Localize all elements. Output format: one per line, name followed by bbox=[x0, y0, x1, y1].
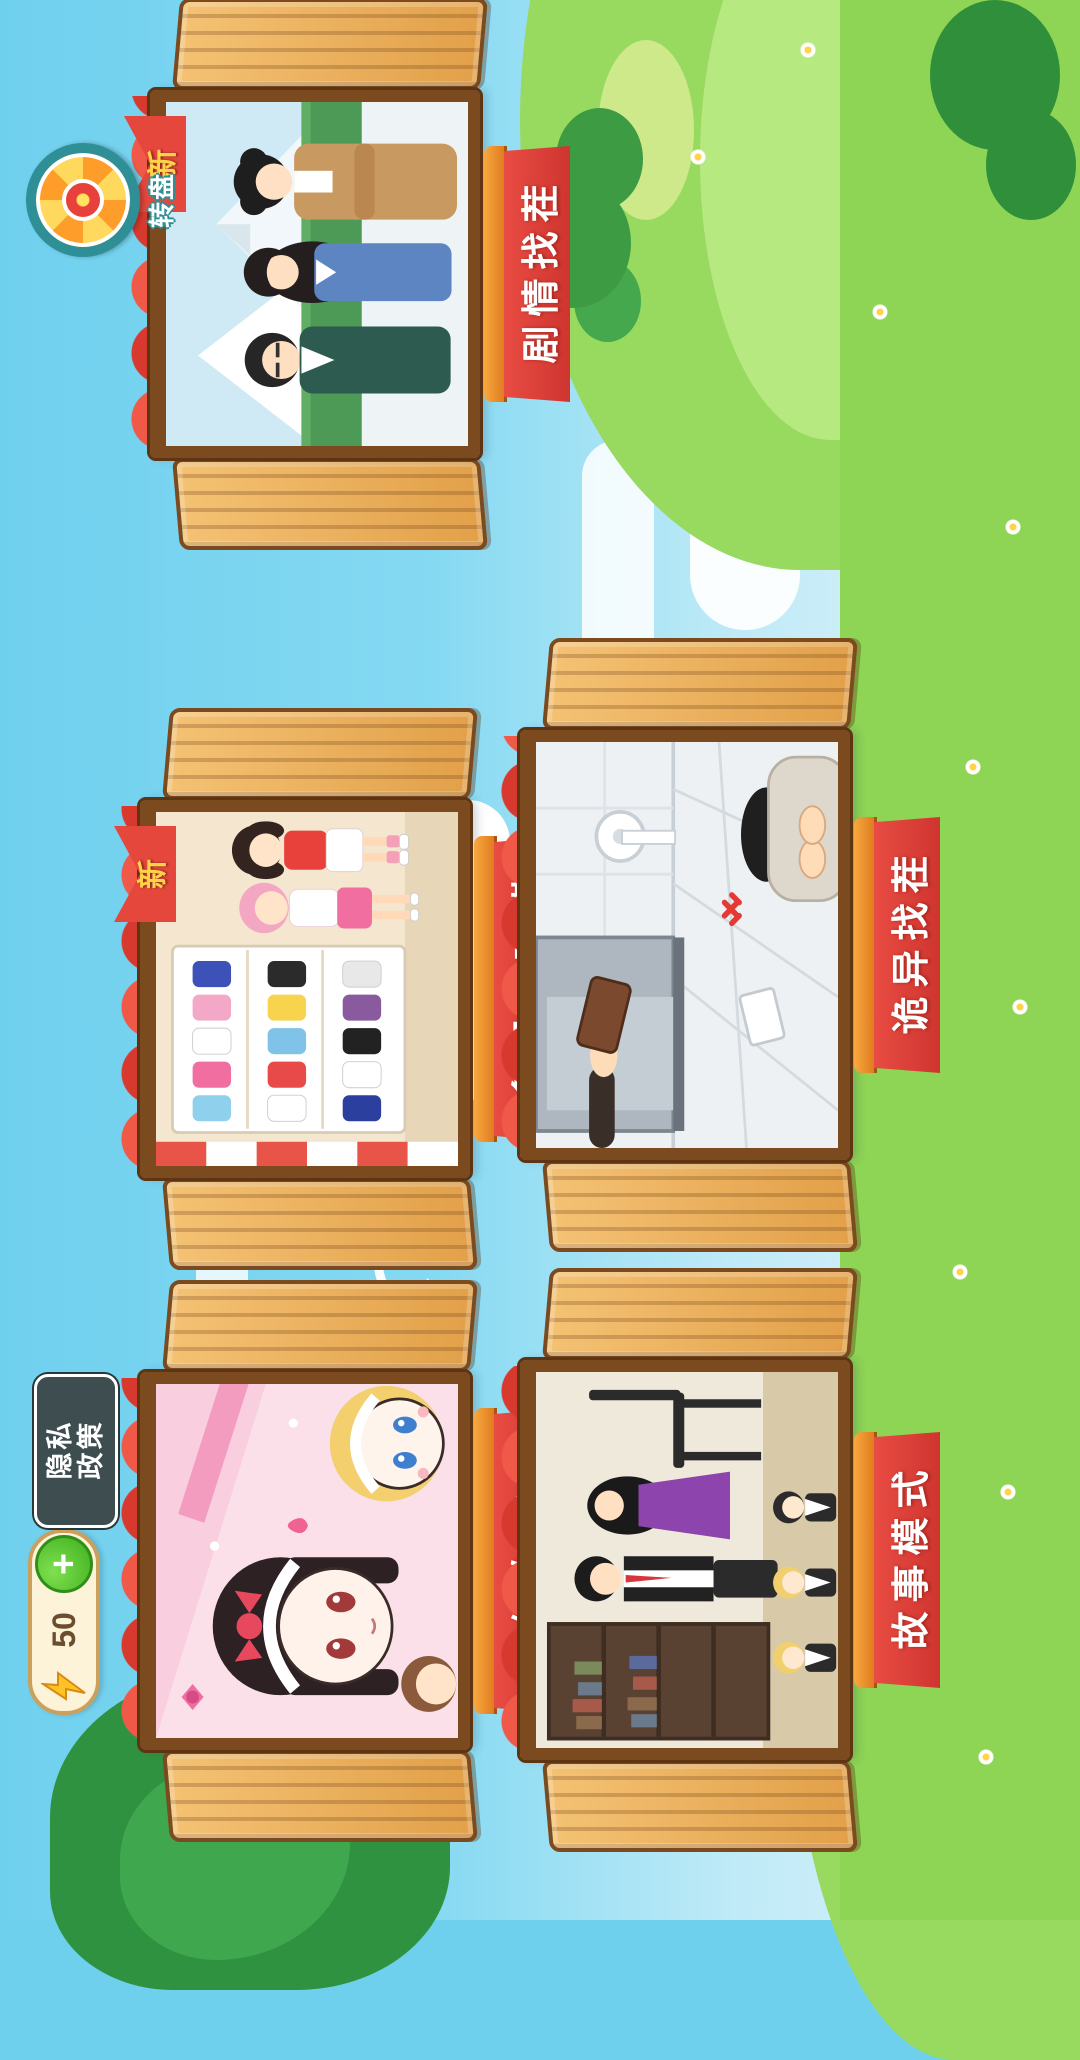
card-title: 故事模式 bbox=[880, 1462, 935, 1659]
card-shutter-left bbox=[162, 1178, 478, 1270]
card-weird-spot-difference[interactable]: 诡异找茬 bbox=[520, 730, 850, 1160]
new-badge: 新 bbox=[114, 826, 176, 922]
card-art-frame bbox=[140, 1372, 470, 1750]
privacy-line1: 隐私 bbox=[45, 1420, 76, 1483]
card-banner: 故事模式 bbox=[854, 1432, 940, 1688]
rotated-landscape-stage: 贴纸女孩儿 bbox=[0, 0, 1080, 1920]
add-energy-button[interactable]: + bbox=[35, 1535, 93, 1593]
card-awning bbox=[490, 736, 524, 1154]
card-shutter-left bbox=[542, 1760, 858, 1852]
game-screen: { "hud": { "energy": {"value": "50", "ad… bbox=[0, 0, 1080, 1920]
flower bbox=[952, 1264, 968, 1280]
flower bbox=[978, 1749, 994, 1765]
card-art-story-mode bbox=[536, 1372, 838, 1748]
flower bbox=[1000, 1484, 1016, 1500]
card-shutter-right bbox=[162, 708, 478, 800]
flower bbox=[965, 759, 981, 775]
card-art-story-spot-difference bbox=[166, 102, 468, 446]
card-shutter-right bbox=[542, 1268, 858, 1360]
flower bbox=[1005, 519, 1021, 535]
prize-wheel-button[interactable]: 转盘 bbox=[26, 142, 179, 258]
card-dopamine-dressup[interactable]: 新 多巴胺穿搭 bbox=[140, 800, 470, 1178]
card-shutter-left bbox=[542, 1160, 858, 1252]
flower bbox=[690, 149, 706, 165]
prize-wheel-icon bbox=[26, 143, 140, 257]
card-art-sticker-girls bbox=[156, 1384, 458, 1738]
card-art-frame bbox=[150, 90, 480, 458]
banner-trim bbox=[484, 146, 504, 402]
card-title: 诡异找茬 bbox=[880, 847, 935, 1044]
card-art-weird-spot-difference bbox=[536, 742, 838, 1148]
privacy-policy-button[interactable]: 隐私 政策 bbox=[34, 1374, 118, 1528]
flower bbox=[800, 42, 816, 58]
card-sticker-girls[interactable]: 贴纸女孩儿 bbox=[140, 1372, 470, 1750]
card-title: 剧情找茬 bbox=[510, 176, 565, 373]
tree-bush bbox=[930, 0, 1060, 150]
card-art-frame bbox=[140, 800, 470, 1178]
new-badge-label: 新 bbox=[128, 826, 172, 922]
energy-counter[interactable]: 50 + bbox=[28, 1529, 100, 1715]
card-banner: 剧情找茬 bbox=[484, 146, 570, 402]
privacy-line2: 政策 bbox=[76, 1420, 107, 1483]
grass-mound bbox=[598, 40, 694, 220]
flower bbox=[872, 304, 888, 320]
flower bbox=[1012, 999, 1028, 1015]
card-shutter-left bbox=[172, 458, 488, 550]
card-awning bbox=[490, 1366, 524, 1754]
card-shutter-right bbox=[542, 638, 858, 730]
energy-value: 50 bbox=[46, 1593, 83, 1667]
banner-trim bbox=[854, 1432, 874, 1688]
card-shutter-right bbox=[162, 1280, 478, 1372]
card-shutter-left bbox=[162, 1750, 478, 1842]
card-art-frame bbox=[520, 730, 850, 1160]
card-story-spot-difference[interactable]: 新 剧情找茬 bbox=[150, 90, 480, 458]
card-art-dopamine-dressup bbox=[156, 812, 458, 1166]
lightning-icon bbox=[41, 1667, 87, 1705]
prize-wheel-label: 转盘 bbox=[142, 142, 179, 258]
card-story-mode[interactable]: 故事模式 bbox=[520, 1360, 850, 1760]
banner-trim bbox=[854, 817, 874, 1073]
card-banner: 诡异找茬 bbox=[854, 817, 940, 1073]
card-shutter-right bbox=[172, 0, 488, 90]
card-art-frame bbox=[520, 1360, 850, 1760]
